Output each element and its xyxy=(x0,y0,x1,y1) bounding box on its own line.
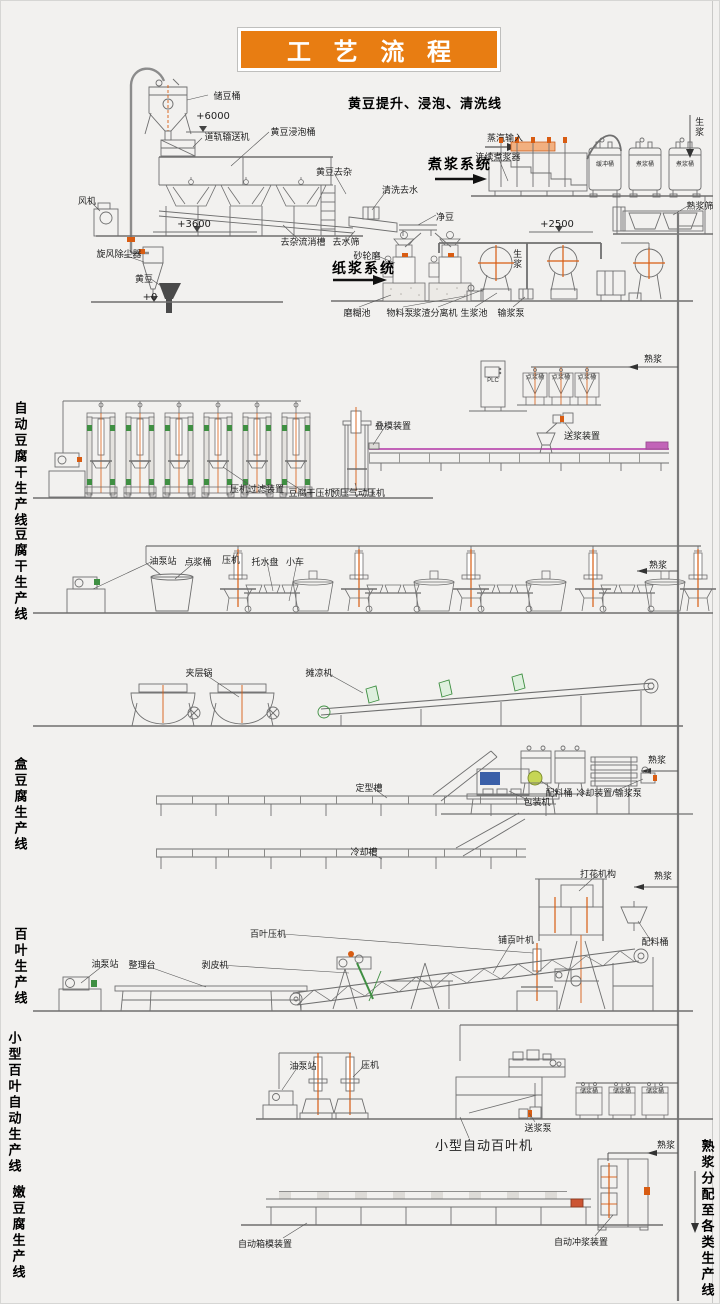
cook-tank-1 xyxy=(629,138,661,197)
storage-tank-2 xyxy=(609,1082,635,1119)
process-flow-poster: 工 艺 流 程 储豆桶+6000道轨输送机黄豆浸泡桶黄豆提升、浸泡、清洗线黄豆去… xyxy=(0,0,720,1304)
title-banner: 工 艺 流 程 xyxy=(238,28,500,71)
jacketed-kettle-2 xyxy=(210,684,279,726)
jacketed-kettle-1 xyxy=(131,684,200,726)
dougan-line-art xyxy=(33,546,716,613)
cook-tank-2 xyxy=(669,138,701,197)
auto-press-2 xyxy=(124,401,156,497)
dougan-press-1 xyxy=(220,549,256,611)
coag-tank-3 xyxy=(575,367,599,405)
flow-diagram-art xyxy=(1,1,720,1304)
kettle-cooling-art xyxy=(33,674,683,726)
dougan-press-4 xyxy=(575,549,611,611)
grinder-mill-2 xyxy=(429,232,471,302)
box-tofu-line-art xyxy=(156,746,693,869)
auto-press-1 xyxy=(85,401,117,497)
coag-tank-2 xyxy=(549,367,573,405)
small-press-1 xyxy=(300,1053,336,1119)
cook-system-art xyxy=(471,115,713,234)
leader-lines xyxy=(81,95,691,1238)
auto-dougan-line-art xyxy=(33,361,669,498)
pot-2 xyxy=(414,571,454,611)
pot-1 xyxy=(293,571,333,611)
soak-tank-2 xyxy=(221,177,271,206)
auto-press-6 xyxy=(280,401,312,497)
baiye-line-art xyxy=(33,879,693,1011)
auto-press-3 xyxy=(163,401,195,497)
dougan-press-5 xyxy=(680,549,716,611)
storage-tank-3 xyxy=(642,1082,668,1119)
dougan-press-3 xyxy=(453,549,489,611)
dougan-press-2 xyxy=(341,549,377,611)
page-title: 工 艺 流 程 xyxy=(279,32,459,67)
storage-tank-1 xyxy=(576,1082,602,1119)
coag-tank-1 xyxy=(523,367,547,405)
pot-3 xyxy=(526,571,566,611)
soft-tofu-line-art xyxy=(241,1159,663,1230)
auto-press-4 xyxy=(202,401,234,497)
grinder-mill-1 xyxy=(383,232,425,302)
small-baiye-line-art xyxy=(256,1025,713,1119)
soak-tank-3 xyxy=(276,177,326,206)
soak-tank-1 xyxy=(166,177,216,206)
pulp-system-art xyxy=(331,232,693,302)
small-press-2 xyxy=(332,1053,368,1119)
